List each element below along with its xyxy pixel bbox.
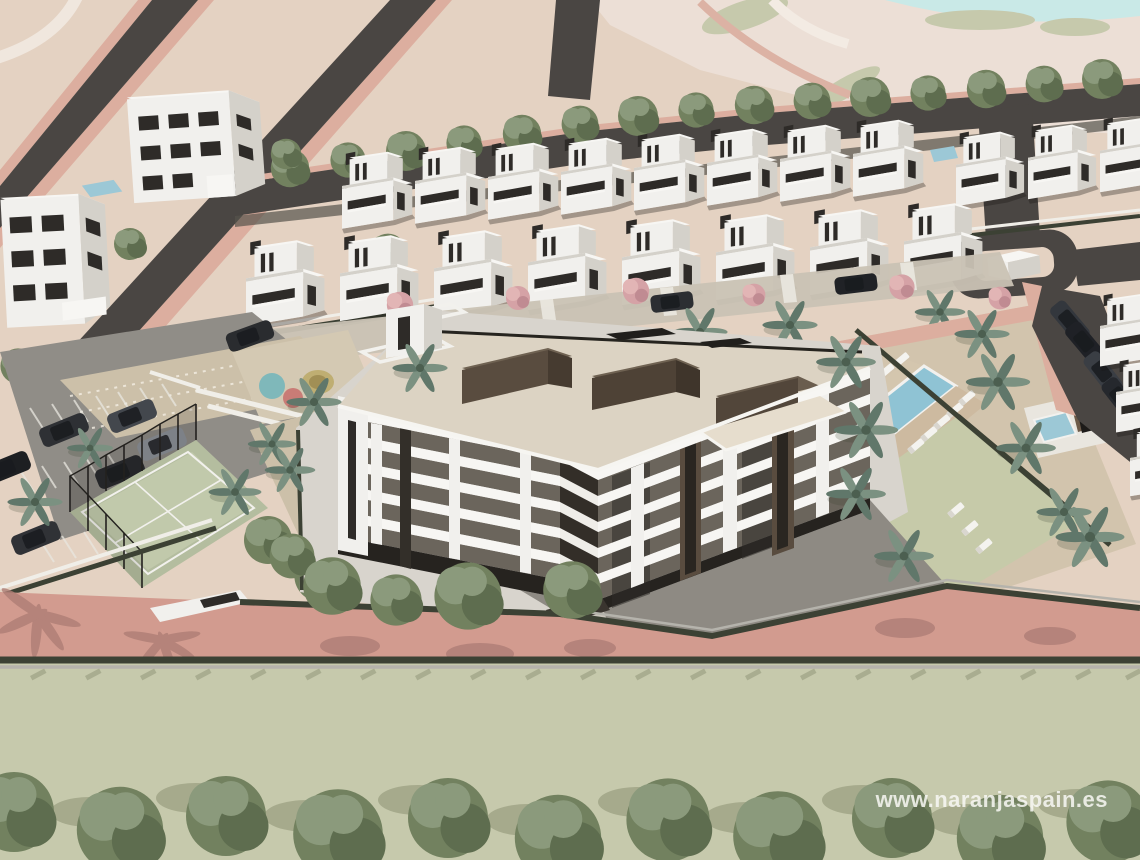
car (9, 519, 62, 556)
green-field (0, 658, 1140, 860)
tree-shadow (320, 636, 380, 656)
villa (1100, 294, 1140, 371)
tree-shadow (564, 639, 616, 657)
villa (1100, 118, 1140, 197)
tree-shadow (875, 618, 935, 638)
scene-svg (0, 0, 1140, 860)
pink-flowering-tree (623, 278, 649, 304)
apartment-block-upper (127, 88, 266, 203)
green-patch (925, 10, 1035, 30)
green-patch (1040, 18, 1110, 36)
pink-flowering-tree (506, 286, 530, 310)
playground-circle-teal (259, 373, 285, 399)
tree-shadow (1024, 627, 1076, 645)
pink-flowering-tree (743, 284, 766, 307)
watermark-url: www.naranjaspain.es (876, 787, 1108, 813)
pink-flowering-tree (889, 274, 914, 299)
pink-flowering-tree (989, 287, 1012, 310)
render-canvas: www.naranjaspain.es (0, 0, 1140, 860)
